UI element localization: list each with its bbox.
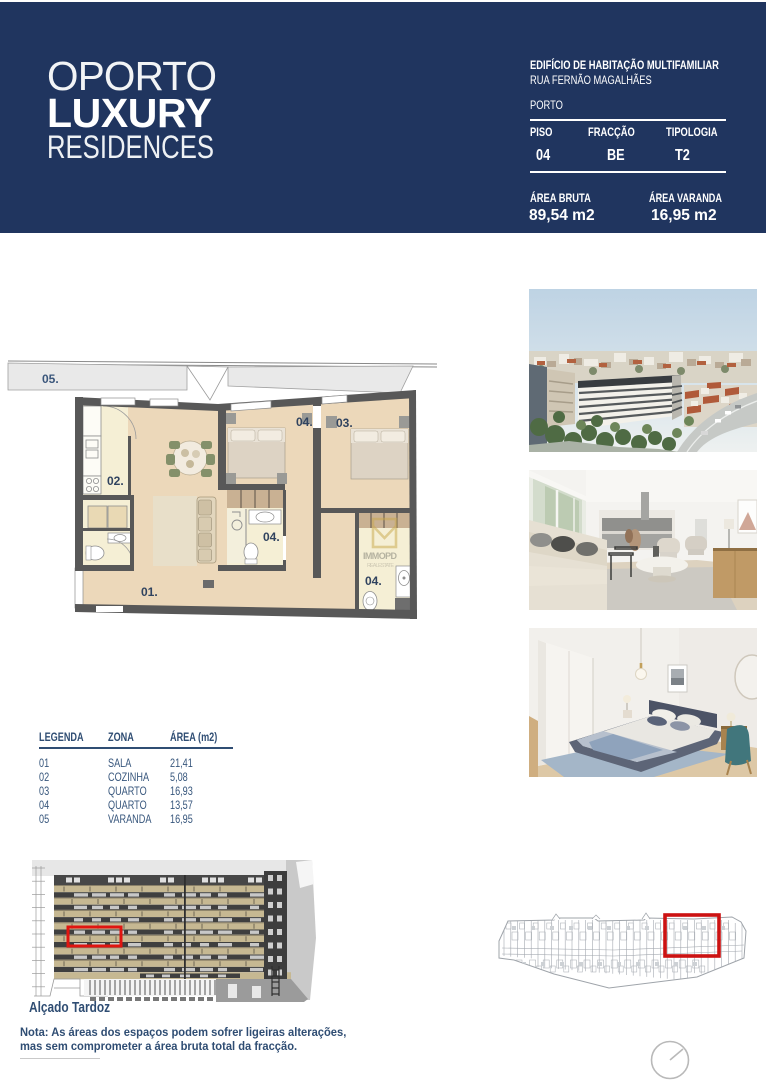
svg-text:05.: 05.: [42, 372, 59, 386]
svg-text:04.: 04.: [365, 574, 382, 588]
svg-text:REAL ESTATE: REAL ESTATE: [367, 563, 394, 569]
svg-text:02.: 02.: [107, 474, 124, 488]
svg-text:04.: 04.: [296, 415, 313, 429]
svg-text:04.: 04.: [263, 530, 280, 544]
svg-text:01.: 01.: [141, 585, 158, 599]
svg-text:RESIDENCES: RESIDENCES: [47, 129, 214, 165]
svg-text:03.: 03.: [336, 416, 353, 430]
svg-text:IMMOPD: IMMOPD: [363, 551, 398, 561]
